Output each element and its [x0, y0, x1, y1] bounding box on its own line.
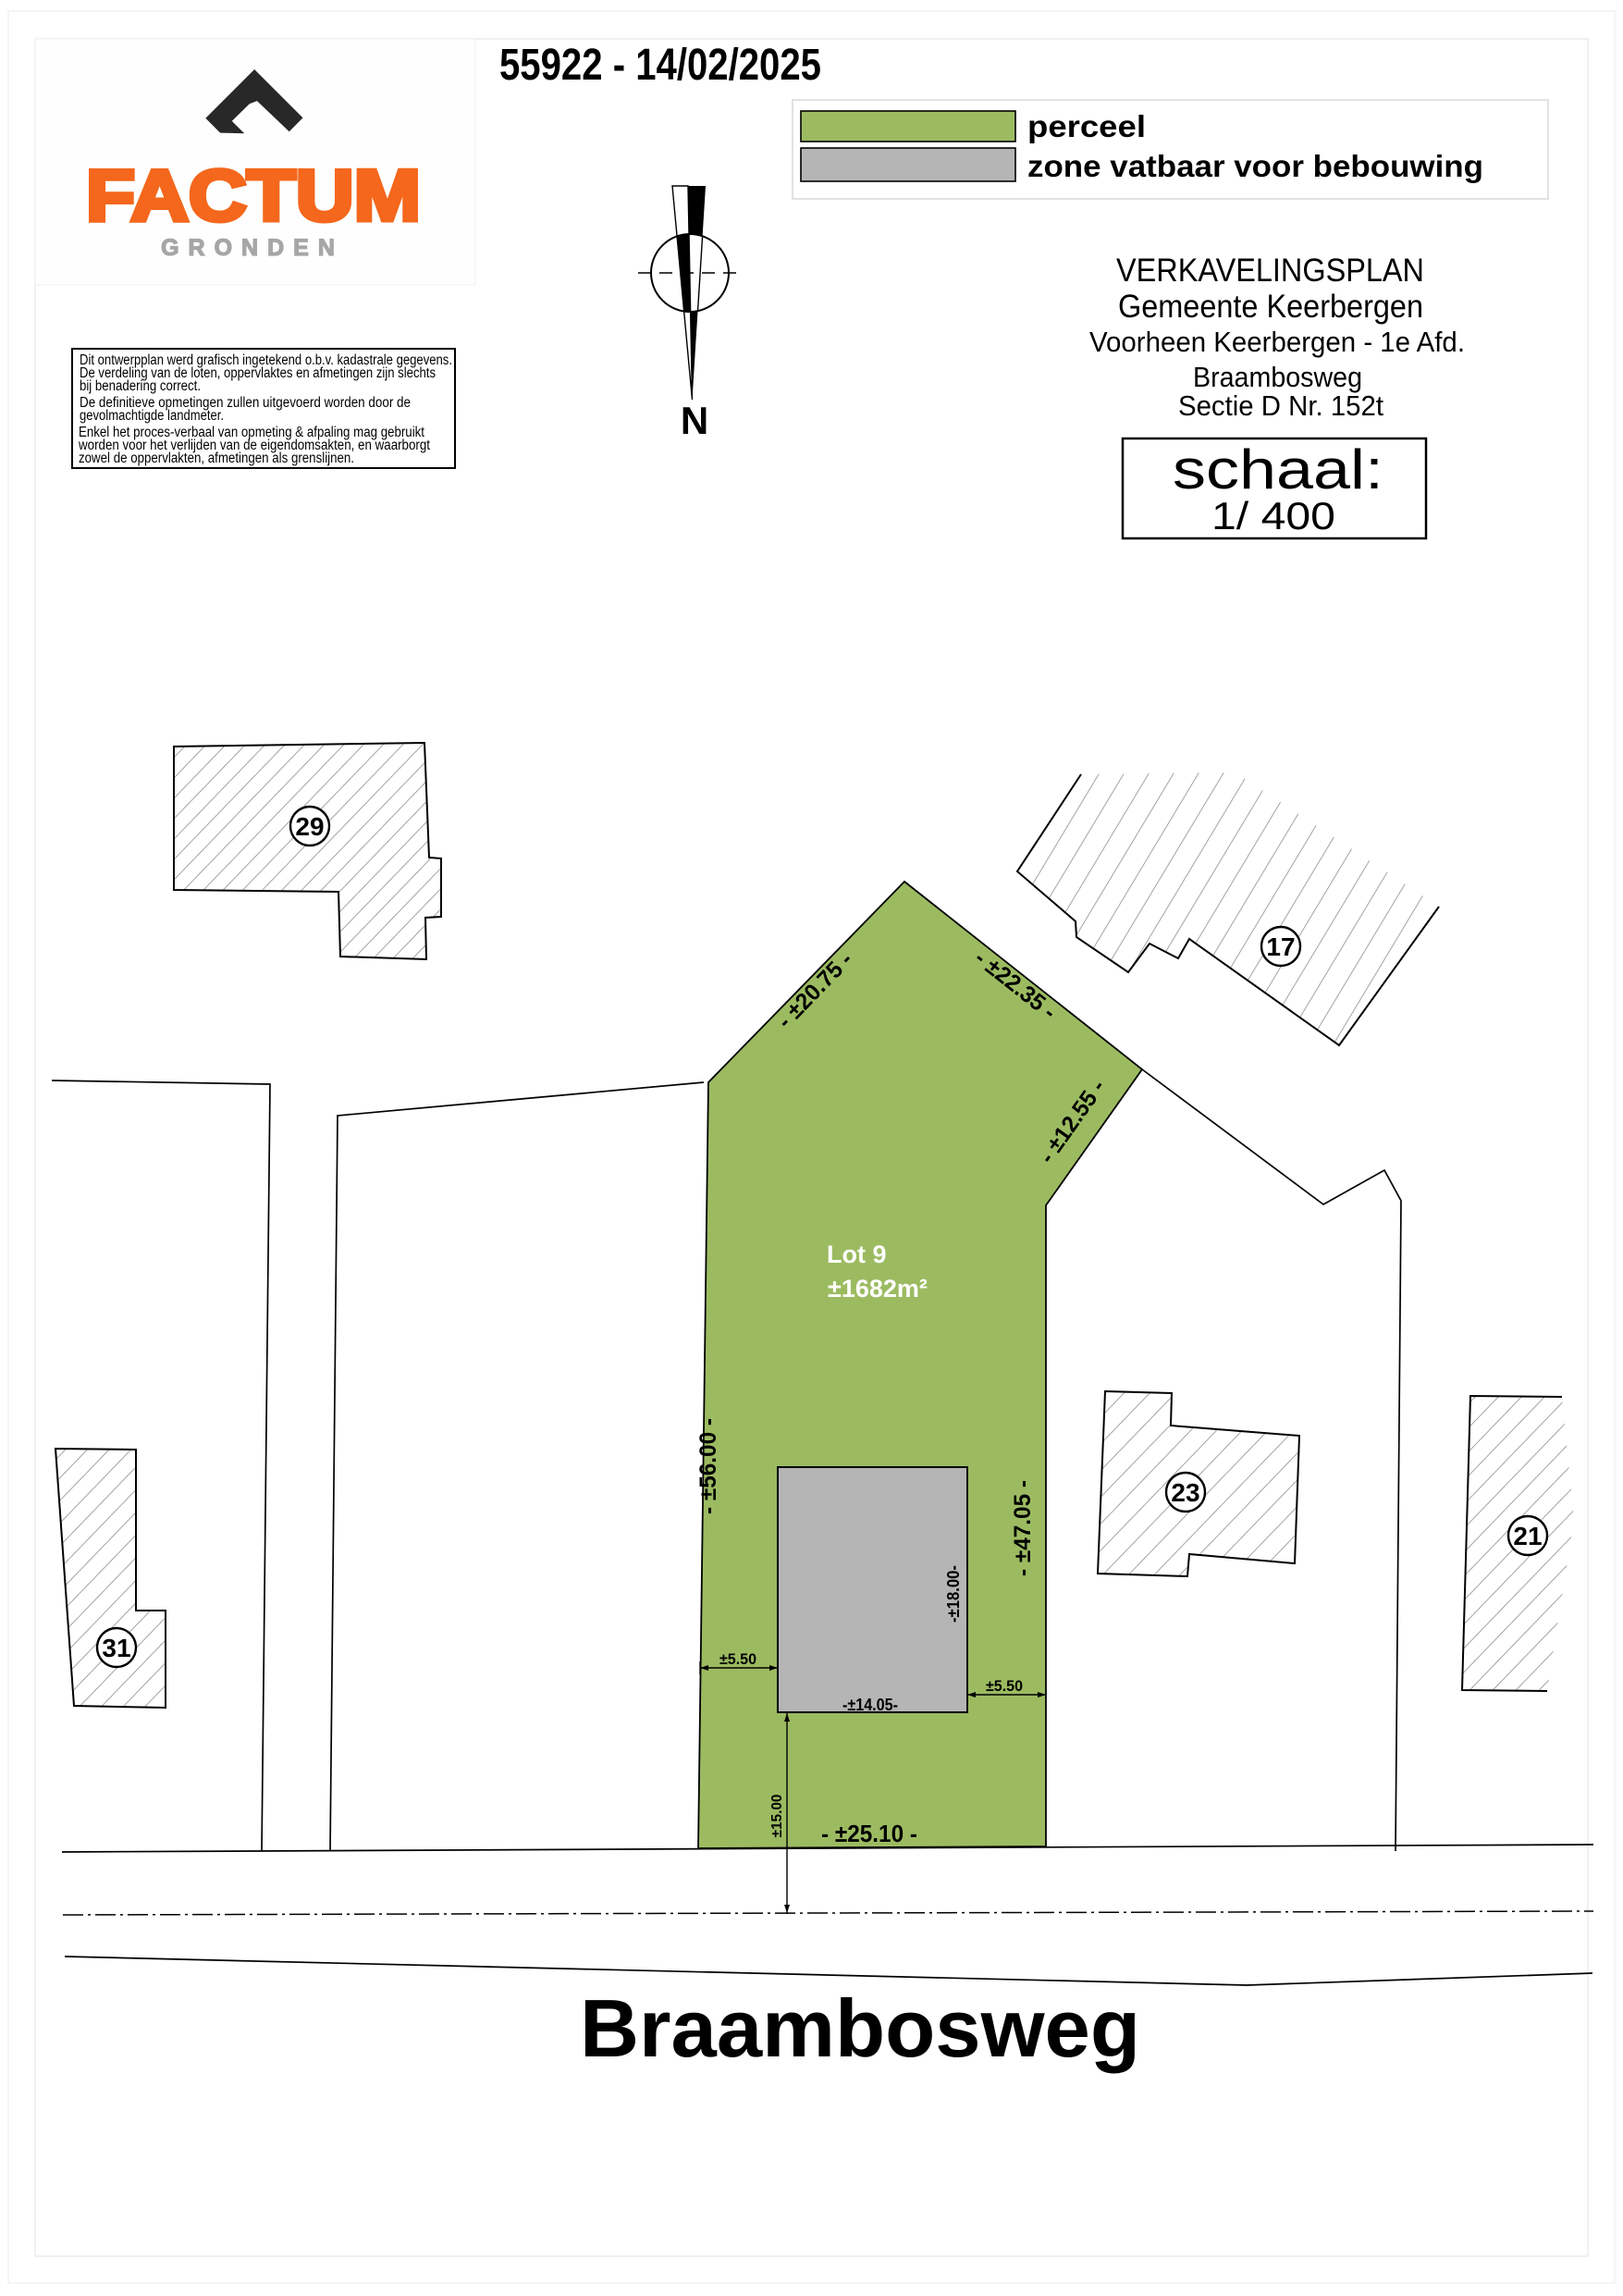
svg-text:Voorheen Keerbergen - 1e Afd.: Voorheen Keerbergen - 1e Afd.	[1089, 326, 1465, 358]
svg-text:- ±56.00 -: - ±56.00 -	[695, 1418, 721, 1514]
svg-text:Braambosweg: Braambosweg	[580, 1982, 1140, 2074]
svg-text:zone vatbaar voor bebouwing: zone vatbaar voor bebouwing	[1027, 149, 1483, 183]
svg-text:1/ 400: 1/ 400	[1211, 494, 1335, 537]
svg-text:-±14.05-: -±14.05-	[842, 1696, 898, 1714]
svg-text:-±18.00-: -±18.00-	[944, 1565, 963, 1623]
svg-text:Sectie D Nr. 152t: Sectie D Nr. 152t	[1178, 389, 1383, 422]
svg-text:VERKAVELINGSPLAN: VERKAVELINGSPLAN	[1116, 253, 1424, 289]
svg-text:±1682m²: ±1682m²	[828, 1275, 928, 1302]
svg-text:17: 17	[1266, 932, 1295, 961]
svg-text:31: 31	[102, 1634, 130, 1662]
svg-text:Lot 9: Lot 9	[827, 1241, 887, 1268]
svg-text:±15.00: ±15.00	[769, 1794, 785, 1837]
svg-text:gevolmachtigde landmeter.: gevolmachtigde landmeter.	[80, 408, 224, 424]
svg-text:±5.50: ±5.50	[719, 1650, 756, 1668]
svg-text:- ±25.10 -: - ±25.10 -	[821, 1820, 917, 1847]
svg-text:N: N	[681, 399, 708, 442]
svg-text:Braambosweg: Braambosweg	[1193, 361, 1362, 393]
svg-text:21: 21	[1513, 1522, 1542, 1550]
svg-text:- ±47.05 -: - ±47.05 -	[1010, 1480, 1036, 1576]
svg-text:±5.50: ±5.50	[986, 1677, 1023, 1695]
svg-text:Gemeente Keerbergen: Gemeente Keerbergen	[1118, 289, 1423, 325]
svg-text:GRONDEN: GRONDEN	[161, 235, 344, 261]
svg-text:bij benadering correct.: bij benadering correct.	[80, 378, 201, 394]
svg-text:perceel: perceel	[1027, 109, 1146, 143]
svg-text:schaal:: schaal:	[1173, 438, 1383, 500]
svg-text:55922 - 14/02/2025: 55922 - 14/02/2025	[499, 41, 821, 90]
svg-text:29: 29	[295, 812, 324, 841]
svg-text:23: 23	[1171, 1478, 1199, 1507]
svg-text:FACTUM: FACTUM	[86, 154, 421, 236]
svg-text:zowel de oppervlakten, afmetin: zowel de oppervlakten, afmetingen als gr…	[79, 451, 354, 466]
